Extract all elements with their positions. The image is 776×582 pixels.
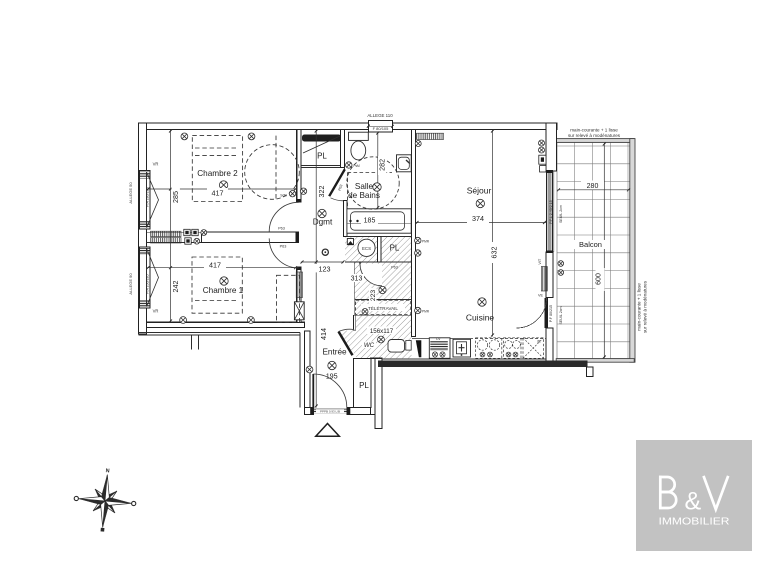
svg-text:VR: VR bbox=[153, 309, 159, 314]
svg-text:VIT: VIT bbox=[538, 258, 542, 265]
svg-text:P63: P63 bbox=[278, 227, 285, 231]
svg-text:P.F.L 2.40/2.15: P.F.L 2.40/2.15 bbox=[549, 200, 553, 224]
svg-text:374: 374 bbox=[472, 214, 484, 223]
svg-text:Chambre 2: Chambre 2 bbox=[197, 169, 238, 178]
svg-text:185: 185 bbox=[364, 218, 376, 225]
svg-text:600: 600 bbox=[596, 273, 603, 285]
svg-text:ALLEGE 90: ALLEGE 90 bbox=[128, 273, 133, 295]
svg-text:280: 280 bbox=[587, 183, 599, 190]
svg-text:PL: PL bbox=[390, 244, 400, 253]
svg-text:Entrée: Entrée bbox=[322, 348, 347, 357]
svg-text:LV: LV bbox=[436, 337, 441, 341]
svg-text:123: 123 bbox=[319, 265, 331, 274]
svg-text:VE: VE bbox=[538, 294, 544, 298]
svg-text:PL: PL bbox=[317, 152, 327, 161]
svg-text:Séjour: Séjour bbox=[467, 186, 492, 196]
svg-text:417: 417 bbox=[212, 189, 224, 198]
svg-text:PPPB 0.93 L/B: PPPB 0.93 L/B bbox=[320, 409, 340, 413]
svg-text:156x117: 156x117 bbox=[370, 328, 394, 335]
svg-text:ALLEGE 50: ALLEGE 50 bbox=[128, 182, 133, 204]
svg-text:N: N bbox=[105, 468, 110, 474]
svg-text:Dgmt: Dgmt bbox=[313, 218, 333, 227]
svg-text:P.F 80/215: P.F 80/215 bbox=[549, 305, 553, 322]
svg-text:282: 282 bbox=[378, 159, 387, 171]
svg-text:WC: WC bbox=[364, 342, 375, 349]
svg-text:SEUIL 2cm: SEUIL 2cm bbox=[559, 205, 563, 223]
svg-text:PL: PL bbox=[359, 381, 369, 390]
svg-text:F/A 180/185: F/A 180/185 bbox=[146, 187, 150, 206]
svg-text:Salle: Salle bbox=[355, 182, 374, 191]
svg-text:417: 417 bbox=[209, 260, 221, 269]
svg-text:632: 632 bbox=[490, 247, 499, 259]
svg-text:SEUIL 2cm: SEUIL 2cm bbox=[559, 306, 563, 324]
svg-text:313: 313 bbox=[351, 276, 363, 283]
svg-text:de Bains: de Bains bbox=[348, 191, 380, 200]
svg-text:Balcon: Balcon bbox=[579, 240, 602, 249]
svg-text:IMMOBILIER: IMMOBILIER bbox=[659, 516, 730, 527]
svg-text:TÉLÉTRAVAIL: TÉLÉTRAVAIL bbox=[368, 305, 398, 311]
svg-text:ALLEGE 110: ALLEGE 110 bbox=[367, 113, 393, 118]
svg-text:F 80/105: F 80/105 bbox=[373, 126, 390, 131]
svg-text:VR: VR bbox=[153, 162, 159, 167]
svg-text:223: 223 bbox=[370, 290, 377, 302]
svg-text:Chambre 1: Chambre 1 bbox=[203, 286, 244, 295]
svg-text:&: & bbox=[685, 488, 702, 516]
svg-text:322: 322 bbox=[317, 186, 326, 198]
svg-text:main-courante + 1 lisse: main-courante + 1 lisse bbox=[637, 283, 642, 331]
svg-text:PMR: PMR bbox=[422, 239, 430, 243]
svg-text:PMR: PMR bbox=[422, 309, 430, 313]
svg-text:PsM: PsM bbox=[353, 164, 360, 168]
svg-text:sur relevé à modénatures: sur relevé à modénatures bbox=[642, 280, 647, 333]
svg-text:195: 195 bbox=[326, 372, 338, 381]
svg-text:414: 414 bbox=[319, 328, 328, 340]
svg-text:P63: P63 bbox=[280, 245, 287, 249]
svg-text:sur relevé à modénatures: sur relevé à modénatures bbox=[568, 133, 621, 138]
svg-text:285: 285 bbox=[171, 191, 180, 203]
svg-text:Cuisine: Cuisine bbox=[466, 313, 495, 323]
svg-text:SdB: SdB bbox=[280, 194, 287, 198]
svg-text:main-courante + 1 lisse: main-courante + 1 lisse bbox=[570, 128, 618, 133]
svg-text:ECS: ECS bbox=[362, 246, 371, 251]
svg-text:P63: P63 bbox=[391, 266, 398, 270]
svg-text:F/A 100/185: F/A 100/185 bbox=[146, 274, 150, 293]
svg-text:242: 242 bbox=[171, 281, 180, 293]
